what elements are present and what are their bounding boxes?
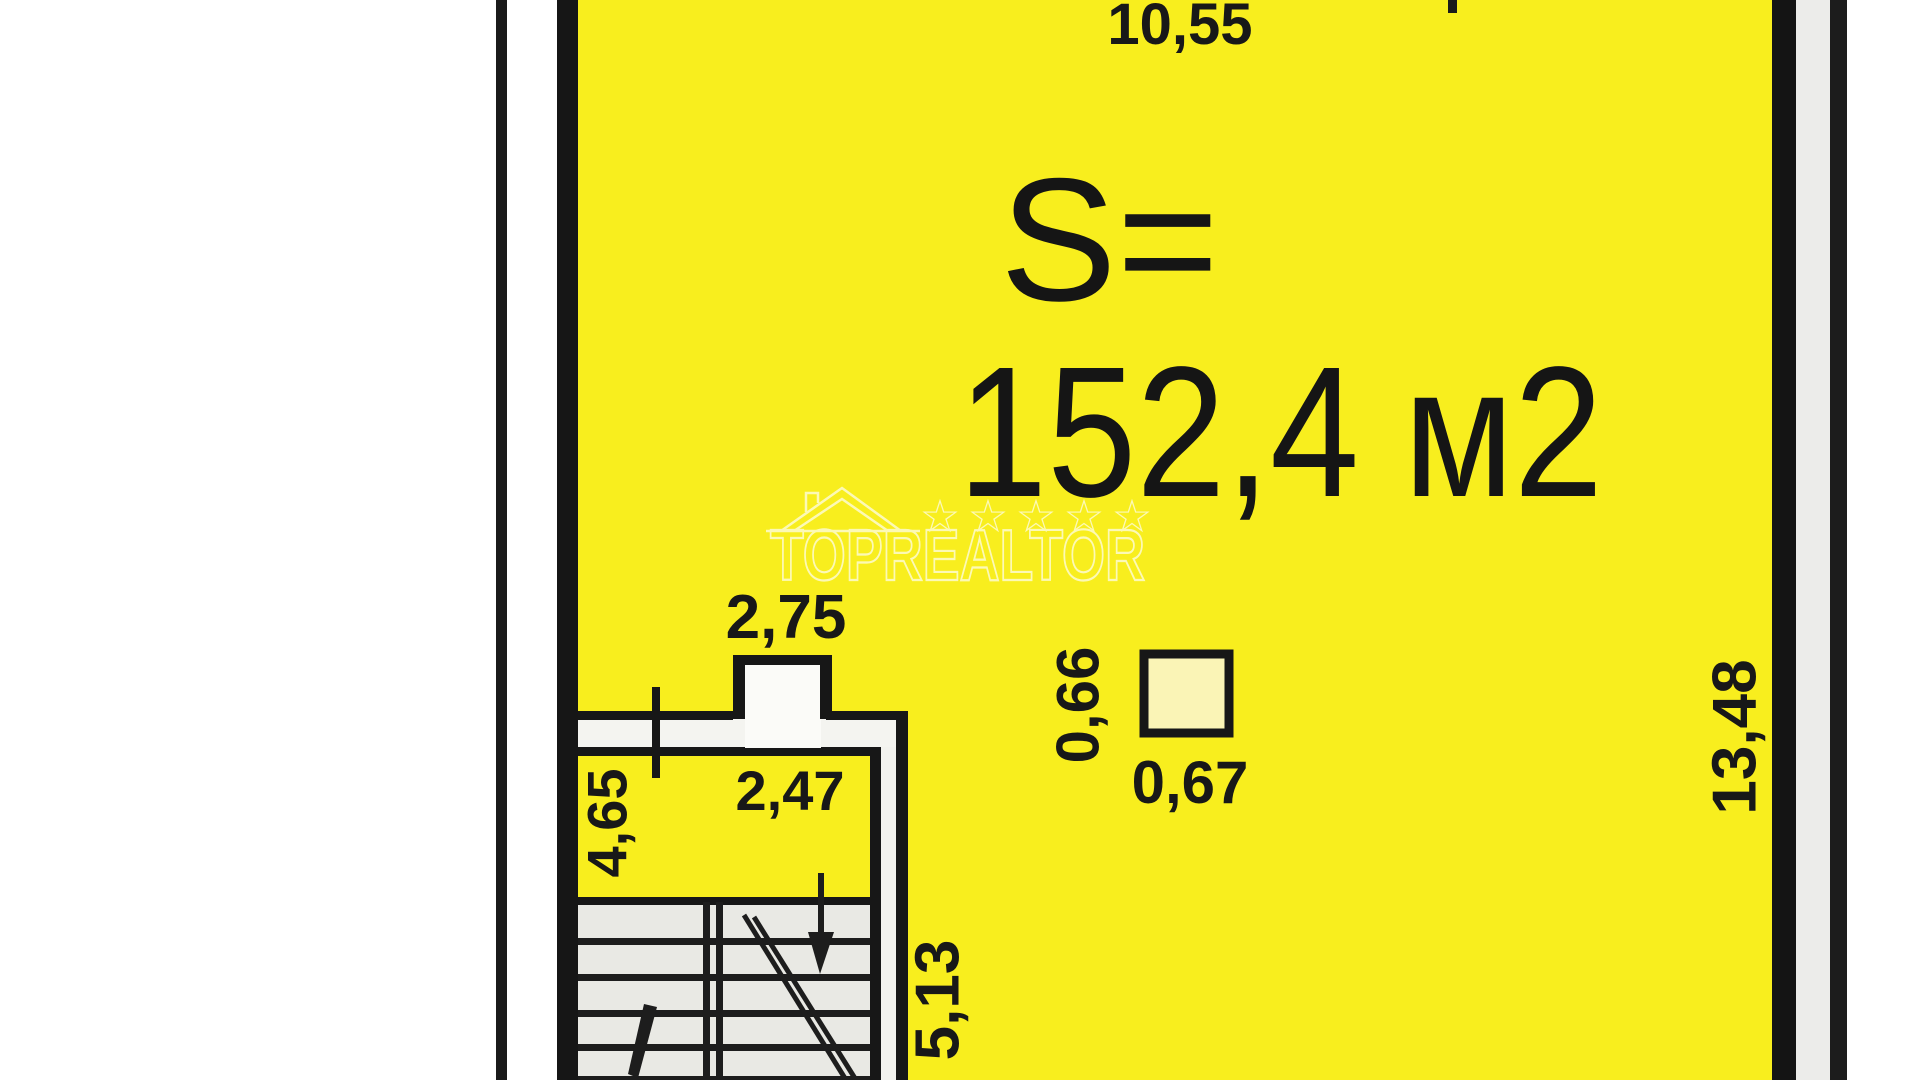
corridor [578, 719, 904, 747]
floor-plan-page: ☆ ☆ ☆ ☆ ☆ TOPREALTOR S= 152,4 м2 10,55 2… [0, 0, 1920, 1080]
dim-top-width-label: 10,55 [1107, 0, 1252, 57]
stairwell-right-gap [881, 747, 896, 1080]
dim-column-width-label: 0,67 [1132, 749, 1249, 816]
dim-room-width-label: 2,47 [736, 759, 845, 822]
area-value: 152,4 м2 [958, 329, 1603, 536]
dim-right-height-label: 13,48 [1701, 659, 1770, 814]
stairs-area [578, 902, 870, 1080]
dim-stair-depth-label: 5,13 [904, 940, 973, 1061]
right-wall-gap [1796, 0, 1830, 1080]
corridor-bottom-wall [578, 747, 880, 756]
shaft-left-wall [733, 655, 745, 719]
dim-column-height-label: 0,66 [1045, 647, 1112, 764]
corridor-tick [652, 687, 660, 778]
dim-shaft-width-label: 2,75 [726, 583, 847, 652]
stairwell-inner-right-wall [870, 747, 881, 1080]
right-wall [1772, 0, 1796, 1080]
shaft-right-wall [820, 655, 832, 719]
page-border-left-line [496, 0, 507, 1080]
stairs-top-edge [578, 897, 881, 905]
area-label-prefix: S= [1000, 143, 1219, 338]
shaft-interior [745, 664, 821, 748]
dimension-tick-top [1448, 0, 1457, 13]
dim-room-depth-label: 4,65 [576, 769, 639, 878]
corridor-top-wall-right [826, 711, 908, 720]
page-border-right-line [1830, 0, 1847, 1080]
floor-plan-drawing: ☆ ☆ ☆ ☆ ☆ TOPREALTOR S= 152,4 м2 10,55 2… [0, 0, 1920, 1080]
left-wall [557, 0, 578, 1080]
shaft-top-wall [733, 655, 832, 665]
column-square [1144, 654, 1229, 733]
